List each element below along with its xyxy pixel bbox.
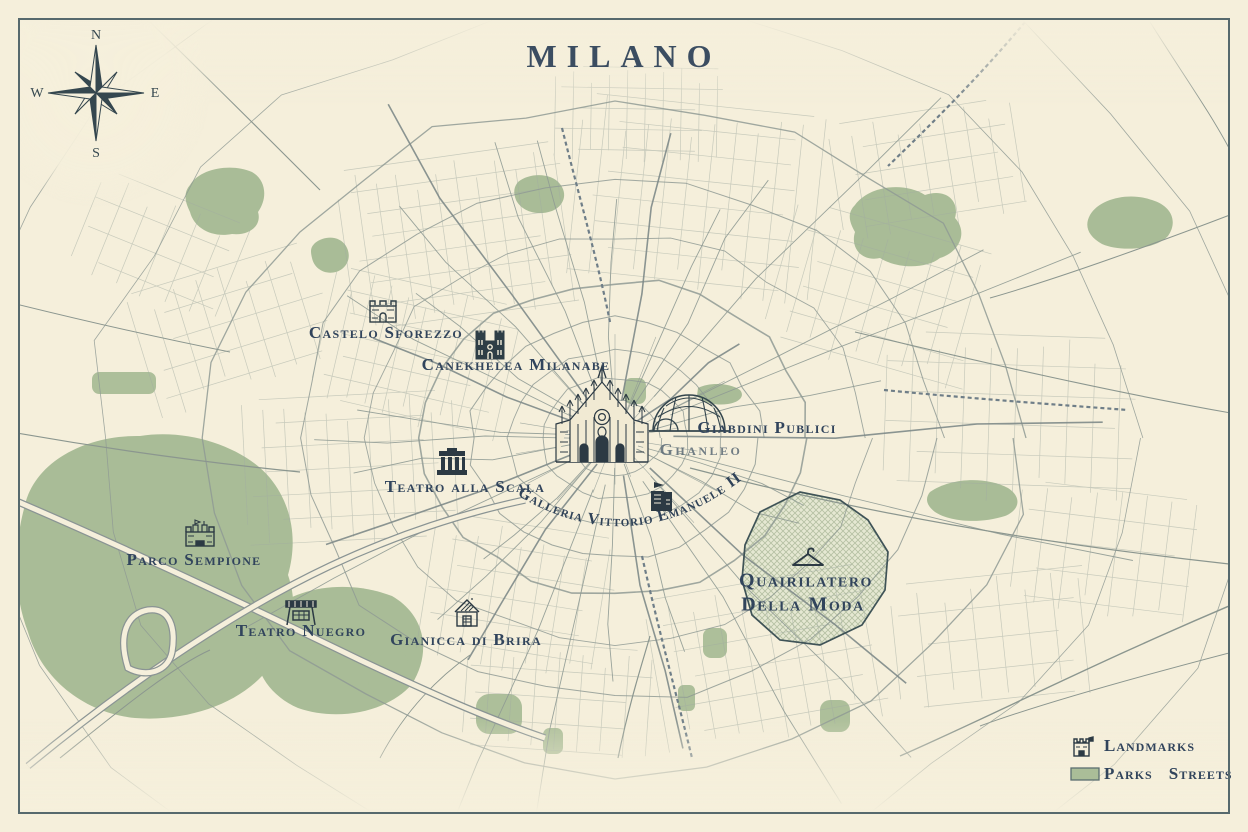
legend-row-landmarks: Landmarks [1070,732,1233,760]
label-castelo-sforezzo: Castelo Sforezzo [309,323,463,343]
castle-icon [367,296,399,325]
compass-west-label: W [30,86,44,101]
label-quadrilatero-line2: Della Moda [741,594,865,617]
page-title: MILANO [0,38,1248,75]
park-castle-icon [181,519,219,551]
label-quadrilatero-line1: Quairilatero [739,570,873,593]
legend-parks-label: Parks [1104,764,1153,784]
label-ghanleo: Ghanleo [660,440,743,460]
label-teatro-alla-scala: Teatro alla Scala [385,477,546,497]
duomo-cathedral-icon [552,362,652,464]
legend-row-parks-streets: Parks Streets [1070,760,1233,788]
compass-rose-icon: N E S W [28,25,164,161]
galleria-building-icon [647,480,675,512]
hanger-icon [789,546,827,570]
compass-east-label: E [151,86,160,101]
label-teatro-nuegro: Teatro Nuegro [236,621,367,641]
legend-landmark-icon [1070,733,1104,759]
theater-icon [435,448,469,478]
legend-park-swatch [1070,767,1104,781]
legend-landmarks-label: Landmarks [1104,736,1195,756]
label-canekhelea-milanabe: Canekhelea Milanabe [422,355,611,375]
compass-south-label: S [92,146,100,161]
house-icon [452,597,482,631]
legend-streets-label: Streets [1169,764,1233,784]
label-parco-sempione: Parco Sempione [127,550,262,570]
label-giabdini-publici: Giabdini Publici [697,418,836,438]
milano-map-poster: MILANO N E S W [0,0,1248,832]
compass-north-label: N [91,28,101,43]
legend: Landmarks Parks Streets [1070,732,1233,788]
label-gianicca-di-brira: Gianicca di Brira [390,630,542,650]
